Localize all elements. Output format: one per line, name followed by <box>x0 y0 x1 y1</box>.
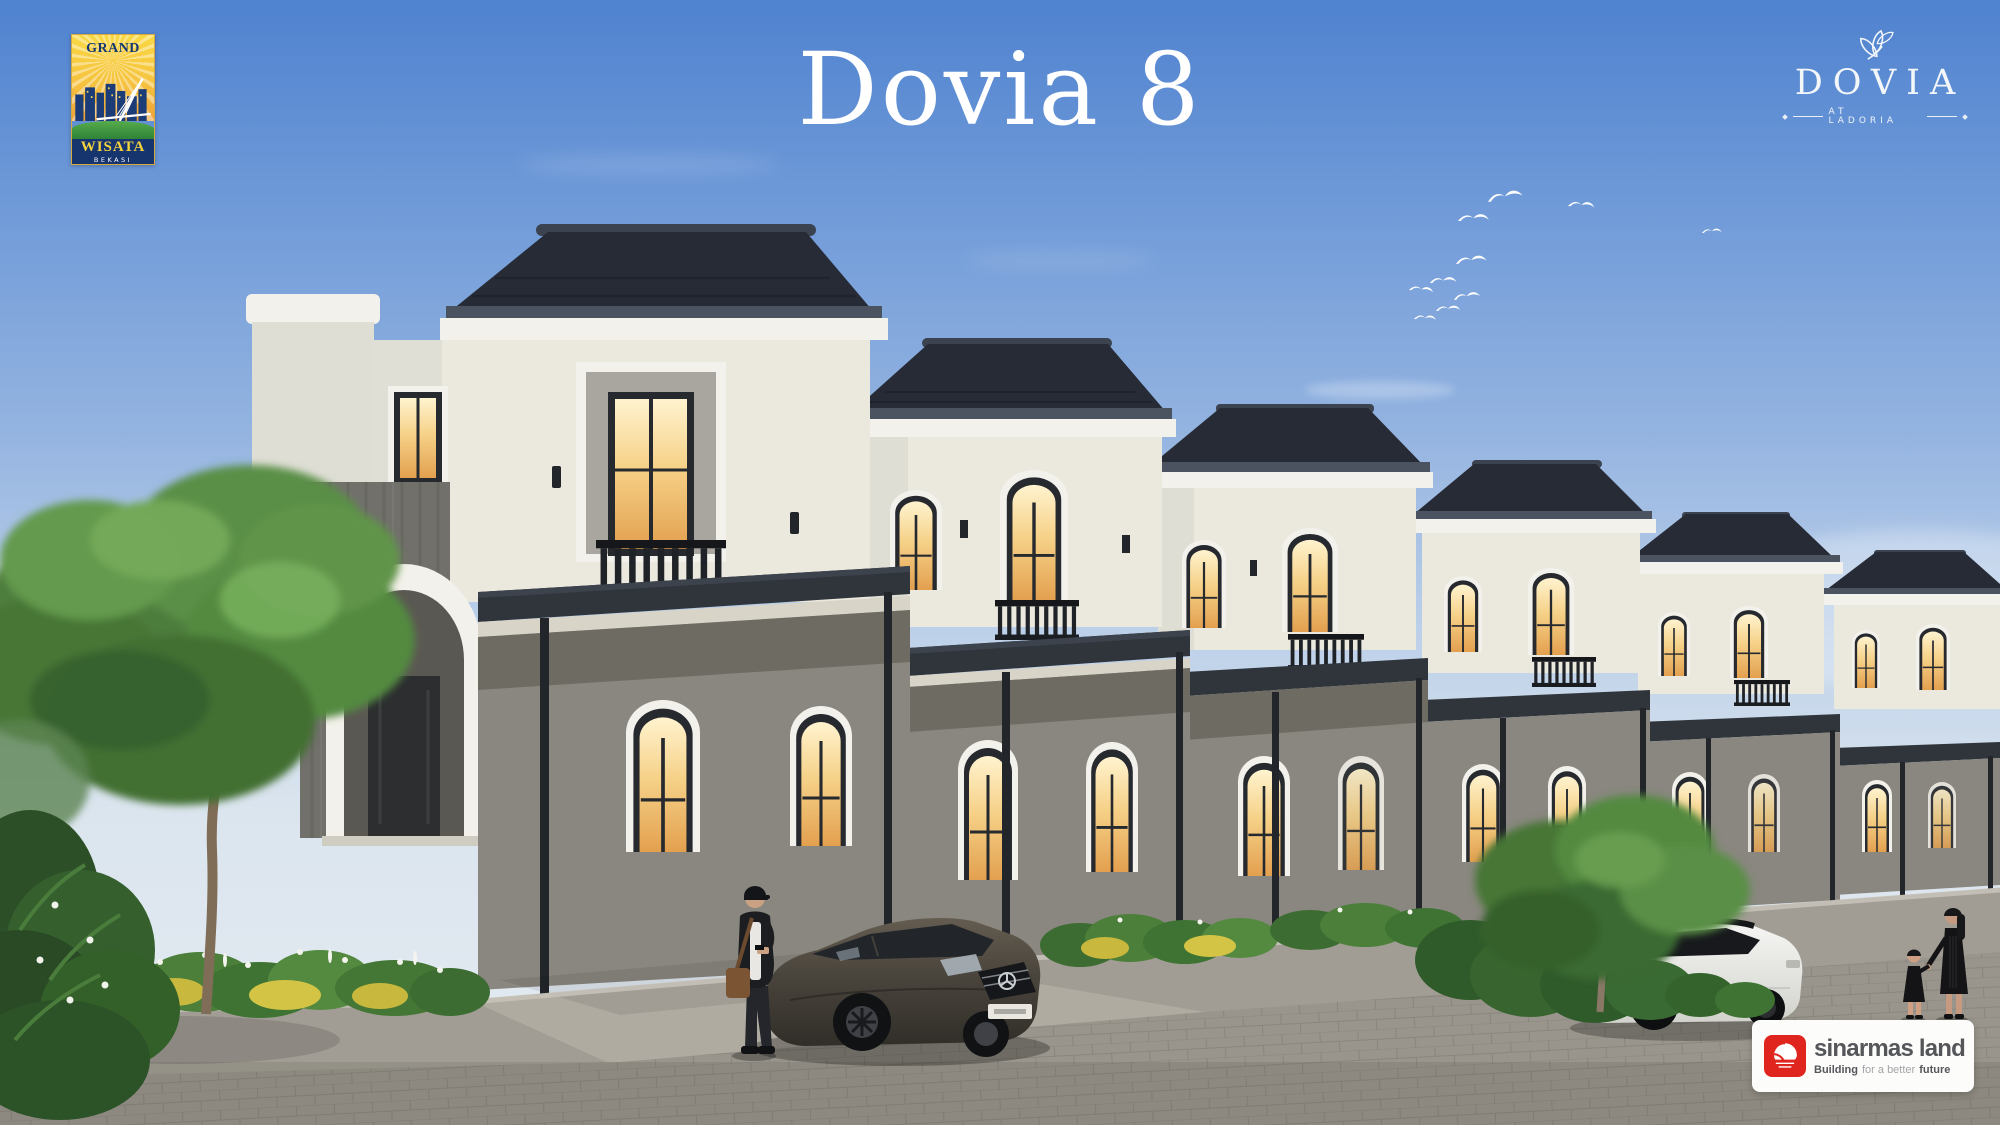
tagline-diamond-left <box>1782 114 1788 120</box>
page-title: Dovia 8 <box>798 40 1203 140</box>
sinarmas-icon <box>1764 1035 1806 1077</box>
tagline-diamond-right <box>1962 114 1968 120</box>
sinarmas-tagline: Building for a better future <box>1814 1064 1962 1076</box>
dovia-wordmark: DOVIA <box>1785 64 1966 103</box>
tagline-bold-start: Building <box>1814 1064 1858 1076</box>
tagline-rule-right <box>1927 116 1957 118</box>
grand-wisata-logo: GRAND WISATA BEKASI <box>71 34 155 165</box>
scene-render <box>0 0 2000 1125</box>
dovia-flower-icon <box>1847 16 1903 64</box>
dovia-logo: DOVIA AT LADORIA <box>1783 16 1967 126</box>
grand-wisata-name-band: WISATA BEKASI <box>72 139 154 164</box>
dovia-tagline: AT LADORIA <box>1829 108 1922 126</box>
grand-wisata-text-grand: GRAND <box>72 41 154 57</box>
tagline-bold-end: future <box>1919 1064 1950 1076</box>
poster: GRAND WISATA BEKASI Dovia 8 <box>0 0 2000 1125</box>
dovia-tagline-row: AT LADORIA <box>1783 108 1967 126</box>
house-6 <box>1820 550 2000 900</box>
grand-wisata-text-bekasi: BEKASI <box>94 157 132 164</box>
sinarmas-land-logo: sinarmas land Building for a better futu… <box>1752 1020 1974 1092</box>
sinarmas-brand: sinarmas land <box>1814 1036 1962 1061</box>
sinarmas-text-block: sinarmas land Building for a better futu… <box>1814 1036 1962 1075</box>
tagline-rule-left <box>1793 116 1823 118</box>
tagline-light: for a better <box>1862 1064 1915 1076</box>
grand-wisata-text-wisata: WISATA <box>81 140 146 155</box>
grand-wisata-skyline-graphic <box>72 75 154 121</box>
grand-wisata-emblem: GRAND <box>72 35 154 121</box>
grand-wisata-green-band <box>72 121 154 139</box>
bird-flock <box>1409 189 1722 321</box>
